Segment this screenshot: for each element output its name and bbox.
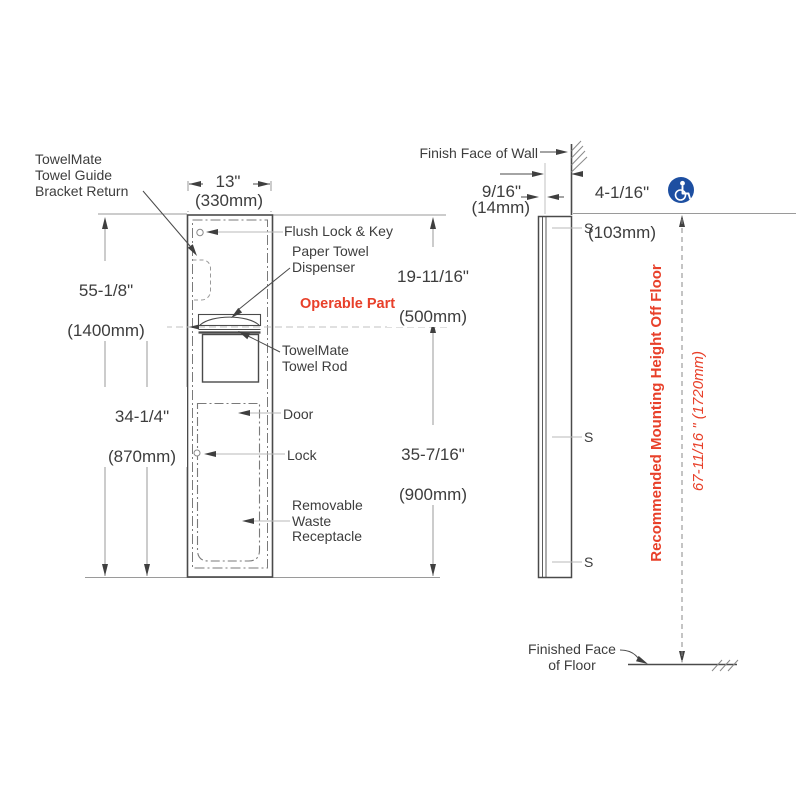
dim-operable-to-floor: 35-7/16" (900mm): [387, 425, 479, 505]
dim-overall-height-mm: (1400mm): [67, 321, 144, 340]
finish-face-of-wall-label: Finish Face of Wall: [402, 146, 538, 162]
mounting-height-value: 67-11/16 " (1720mm): [690, 326, 707, 516]
dim-operable-height-in: 34-1/4": [115, 407, 169, 426]
dim-operable-to-floor-mm: (900mm): [399, 485, 467, 504]
dim-operable-height: 34-1/4" (870mm): [97, 387, 187, 467]
flush-lock-keyhole: [197, 229, 203, 235]
side-panel: [539, 217, 572, 578]
stud-label-middle: S: [584, 430, 593, 446]
dim-operable-to-floor-in: 35-7/16": [401, 445, 465, 464]
dim-recess-in: 4-1/16": [595, 183, 649, 202]
stud-label-bottom: S: [584, 555, 593, 571]
dim-recess-mm: (103mm): [588, 223, 656, 242]
dim-top-to-operable-in: 19-11/16": [397, 267, 469, 286]
flush-lock-label: Flush Lock & Key: [284, 224, 393, 240]
towel-rod-label: TowelMate Towel Rod: [282, 343, 349, 374]
stud-label-top: S: [584, 221, 593, 237]
operable-part-label: Operable Part: [300, 297, 395, 313]
dim-width-mm: (330mm): [184, 191, 274, 211]
lock-label: Lock: [287, 448, 317, 464]
dim-width-inches: 13": [203, 172, 253, 192]
bracket-return-label: TowelMate Towel Guide Bracket Return: [35, 151, 128, 199]
paper-towel-dispenser-label: Paper Towel Dispenser: [292, 244, 369, 275]
wheelchair-accessibility-icon: [668, 177, 694, 203]
dispenser-tray: [203, 335, 259, 383]
mounting-height-label: Recommended Mounting Height Off Floor: [648, 243, 665, 583]
dim-projection-mm: (14mm): [448, 200, 530, 216]
spec-drawing-towel-dispenser: TowelMate Towel Guide Bracket Return 13"…: [0, 0, 800, 800]
door-label: Door: [283, 407, 313, 423]
mounting-height-dimension: [573, 214, 796, 672]
door-lock-keyhole: [194, 450, 200, 456]
finished-face-of-floor-label: Finished Face of Floor: [522, 642, 622, 673]
dim-top-to-operable-mm: (500mm): [399, 307, 467, 326]
dim-top-to-operable: 19-11/16" (500mm): [387, 247, 479, 327]
floor-hatching: [712, 660, 738, 671]
waste-receptacle-label: Removable Waste Receptacle: [292, 498, 363, 545]
dim-overall-height: 55-1/8" (1400mm): [45, 261, 167, 341]
dim-operable-height-mm: (870mm): [108, 447, 176, 466]
dim-overall-height-in: 55-1/8": [79, 281, 133, 300]
